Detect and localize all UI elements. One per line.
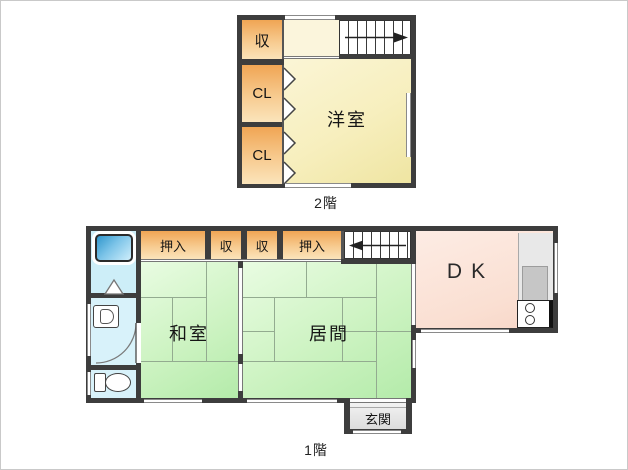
landing-2f <box>284 20 339 58</box>
wall-genkan-right <box>406 398 412 433</box>
window <box>87 304 91 356</box>
folding-door-icon <box>283 67 297 91</box>
room-storage-2f-label: 収 <box>254 30 269 51</box>
room-ima-label: 居間 <box>309 320 349 346</box>
room-closet-1: CL <box>242 65 282 122</box>
folding-door-icon <box>283 161 297 185</box>
sliding-door-ima-dk <box>411 264 416 325</box>
room-western-label: 洋室 <box>327 106 367 132</box>
wall-segment <box>238 391 243 398</box>
tatami-line <box>141 297 206 298</box>
closet-oshiire-right: 押入 <box>283 231 341 259</box>
wall-below-stairs-2f <box>339 54 411 59</box>
tatami-line <box>141 361 238 362</box>
tatami-line <box>306 261 307 297</box>
tatami-line <box>376 261 377 398</box>
tatami-line <box>274 297 275 361</box>
closet-storage-1-label: 収 <box>219 236 232 255</box>
tatami-line <box>243 331 274 332</box>
room-dk-caption: DK <box>425 259 507 285</box>
sliding-door-landing <box>284 56 339 59</box>
stairs-up-arrow-icon <box>346 239 409 252</box>
window <box>412 340 416 368</box>
floor-plan-canvas: 収 CL CL 洋室 <box>0 0 628 470</box>
folding-door-icon <box>283 131 297 155</box>
room-closet-1-label: CL <box>252 85 271 102</box>
room-genkan-label: 玄関 <box>365 409 391 428</box>
closet-storage-2-label: 収 <box>255 236 268 255</box>
closet-oshiire-left: 押入 <box>141 231 205 259</box>
room-washitsu-caption: 和室 <box>151 321 227 345</box>
folding-door-icon <box>283 97 297 121</box>
room-storage-2f: 収 <box>242 20 282 60</box>
bathtub <box>95 234 133 262</box>
floor1-caption-label: 1階 <box>304 440 328 460</box>
wall-bath-right <box>136 226 141 403</box>
room-western: 洋室 <box>307 107 387 131</box>
floor2-caption: 2階 <box>266 194 386 212</box>
window <box>421 329 509 333</box>
closet-storage-1: 収 <box>211 231 241 259</box>
window <box>87 372 91 395</box>
toilet-bowl <box>105 373 131 392</box>
room-ima-caption: 居間 <box>291 321 367 345</box>
room-dk-label: DK <box>438 260 494 284</box>
tatami-line <box>243 297 376 298</box>
room-closet-2-label: CL <box>252 147 271 164</box>
wall-segment <box>238 261 243 268</box>
wall-below-stairs-1f <box>341 259 411 264</box>
sliding-door-washitsu-ima <box>238 261 243 398</box>
stove-burner <box>525 315 535 325</box>
wall-wash-toilet <box>91 365 136 370</box>
floor1-caption: 1階 <box>256 441 376 459</box>
closet-oshiire-right-label: 押入 <box>299 236 325 255</box>
tatami-line <box>243 361 376 362</box>
stove <box>517 300 553 328</box>
window <box>554 243 558 293</box>
tatami-line <box>206 261 207 361</box>
window <box>406 93 411 157</box>
wall-segment <box>238 354 243 364</box>
window <box>247 399 337 403</box>
closet-oshiire-left-label: 押入 <box>160 236 186 255</box>
door-arc-icon <box>94 321 138 365</box>
wall-top-1f <box>86 226 558 231</box>
floor2-caption-label: 2階 <box>314 193 338 213</box>
stairs-up-arrow-icon <box>341 31 411 44</box>
window <box>285 183 351 188</box>
tatami-line <box>376 331 411 332</box>
room-genkan: 玄関 <box>350 408 406 428</box>
entrance-door <box>353 430 401 434</box>
bath-door-icon <box>103 278 125 296</box>
kitchen-sink <box>522 266 548 302</box>
window <box>285 15 335 20</box>
window <box>144 399 202 403</box>
stove-burner <box>525 303 535 313</box>
closet-storage-2: 収 <box>247 231 277 259</box>
room-washitsu-label: 和室 <box>169 320 209 346</box>
room-closet-2: CL <box>242 127 282 184</box>
